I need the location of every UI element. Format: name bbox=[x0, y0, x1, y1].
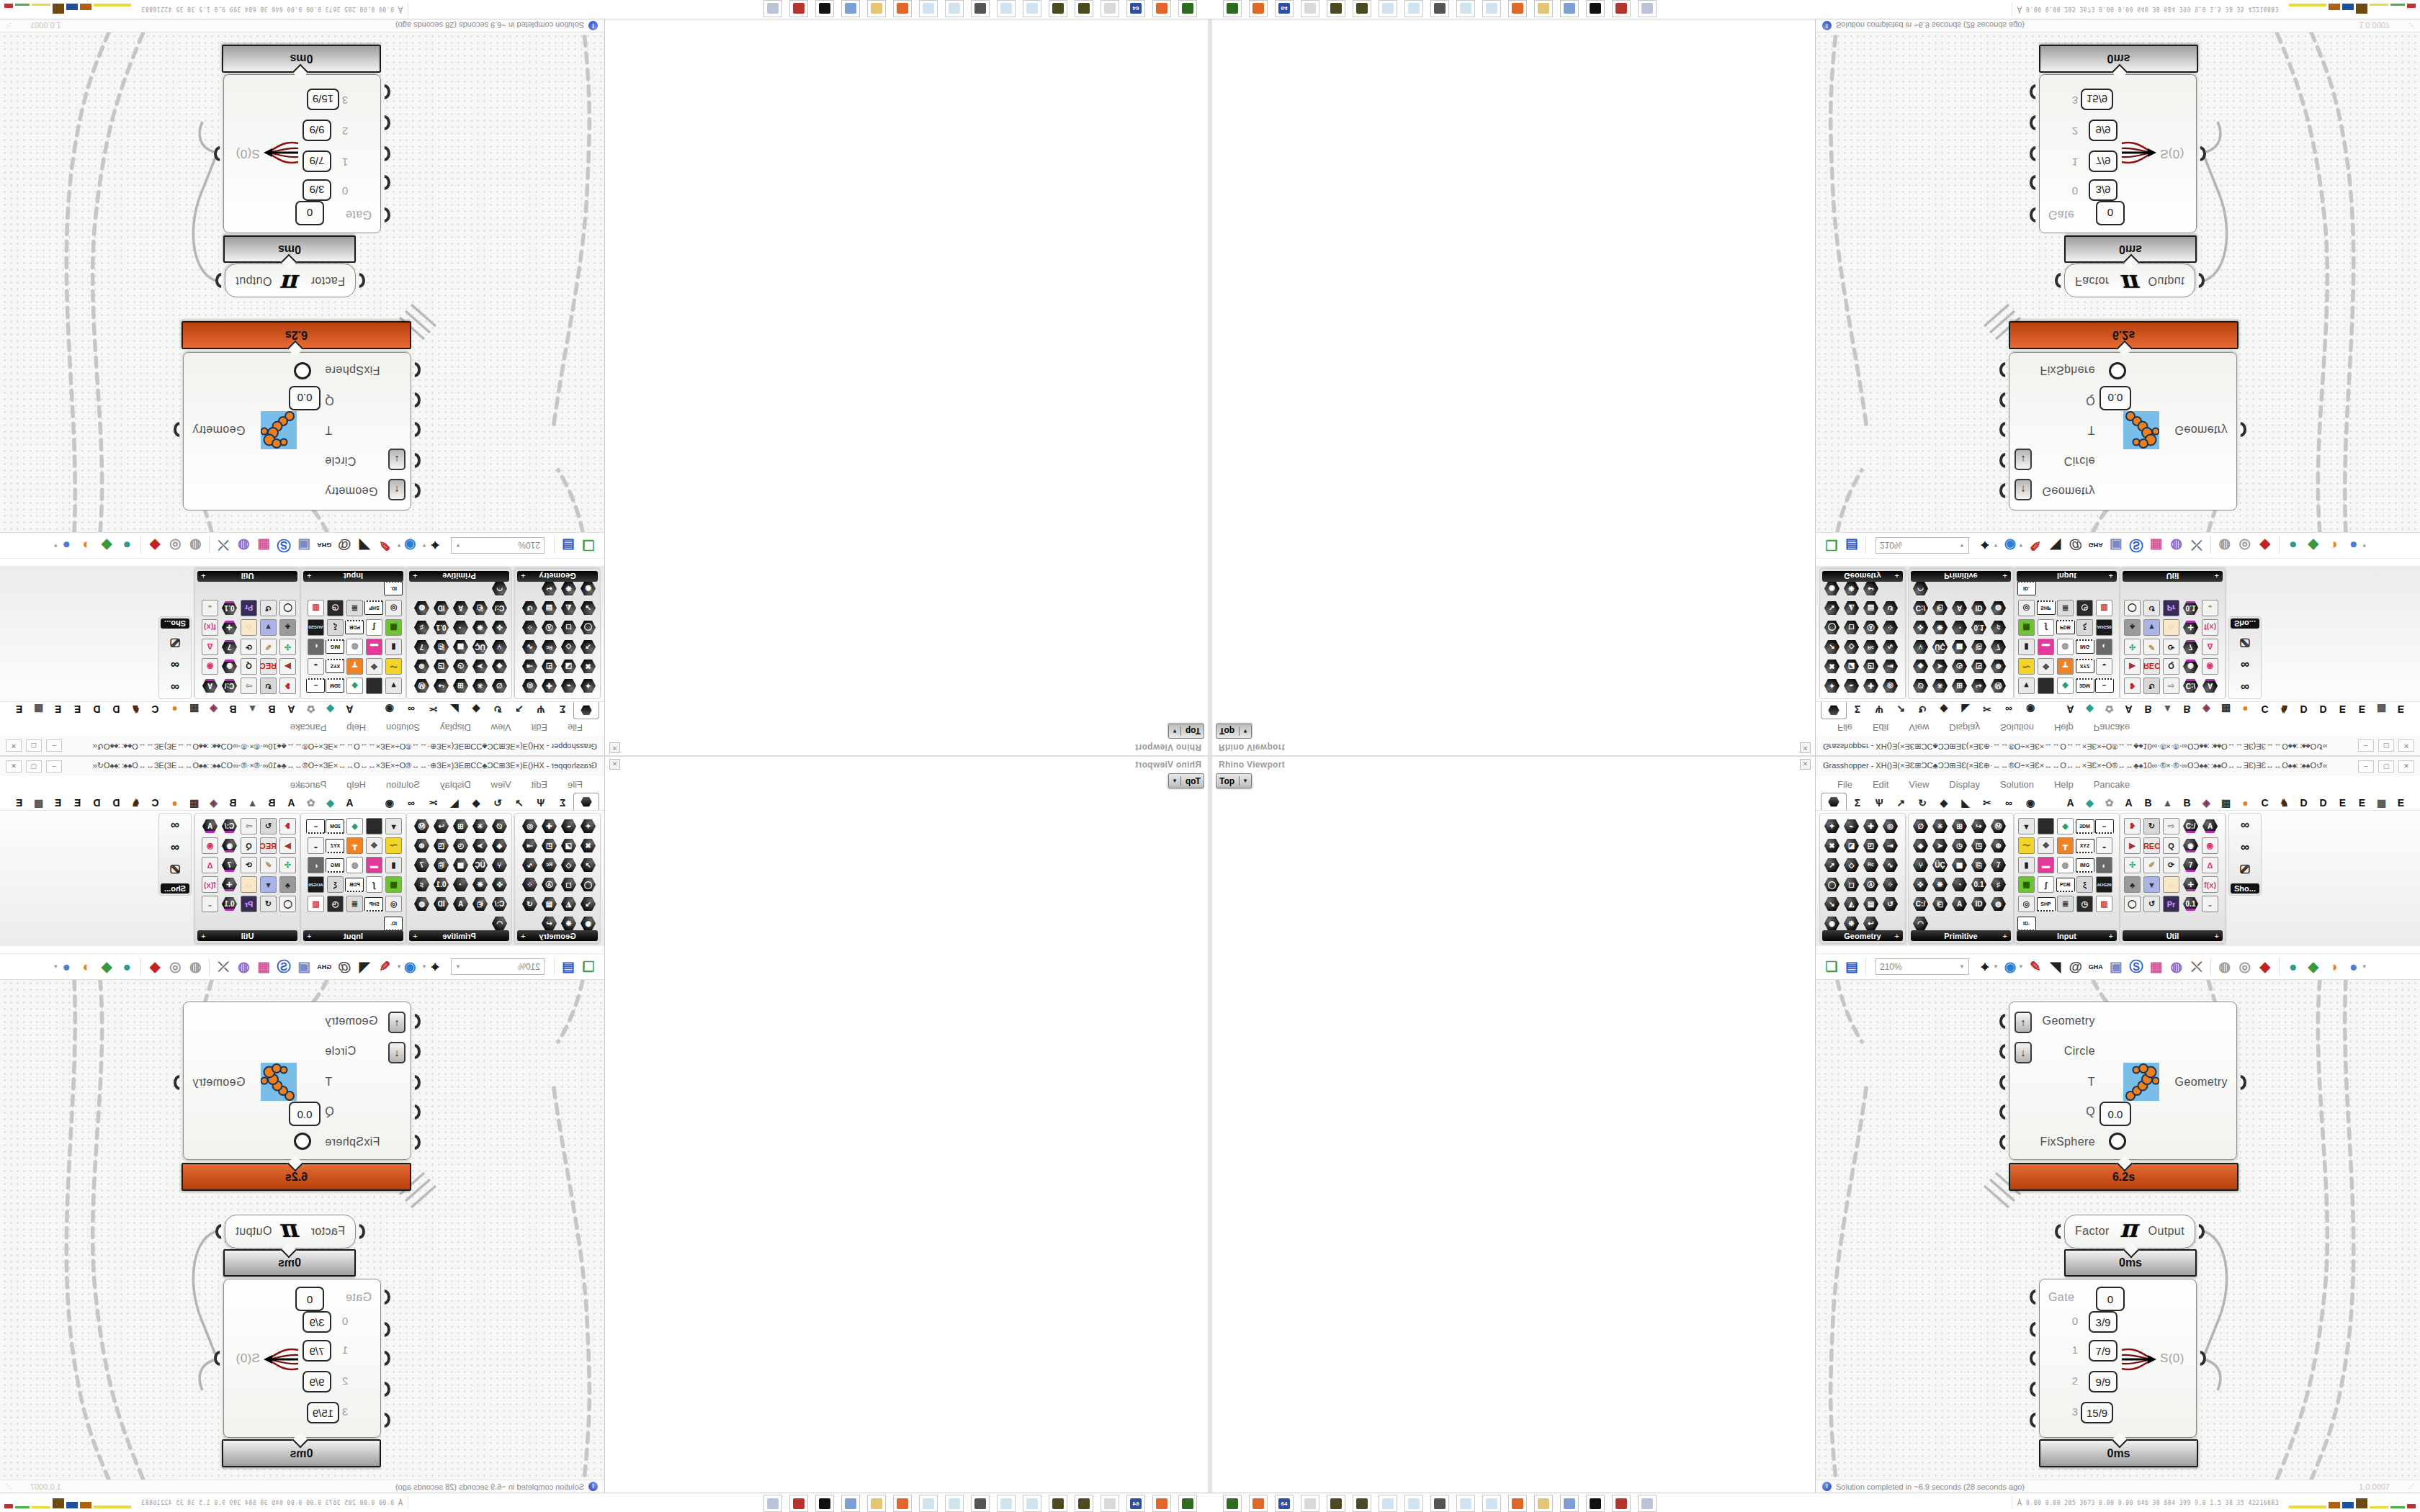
chevron-down-icon[interactable]: ▼ bbox=[53, 542, 58, 549]
component-icon[interactable]: ◭ bbox=[1844, 601, 1860, 616]
component-tab[interactable]: ↗ bbox=[1890, 797, 1912, 810]
component-icon[interactable]: REC bbox=[2143, 658, 2160, 675]
component-icon[interactable]: 〜 bbox=[2018, 658, 2035, 675]
plugin-tab[interactable]: B bbox=[2177, 703, 2197, 715]
component-icon[interactable]: ↺ bbox=[2143, 896, 2160, 912]
component-icon[interactable]: ID. bbox=[2017, 582, 2036, 596]
component-icon[interactable]: ◈ bbox=[2057, 678, 2074, 694]
component-icon[interactable]: ◷ bbox=[453, 660, 469, 674]
component-icon[interactable]: 7 bbox=[222, 640, 238, 654]
rhino-viewport[interactable] bbox=[1212, 19, 1817, 755]
component-icon[interactable]: ◉ bbox=[2202, 658, 2218, 675]
component-icon[interactable]: 0.1 bbox=[222, 897, 238, 912]
toolbar-icon[interactable]: ◥ bbox=[354, 957, 375, 977]
component-icon[interactable]: ξ bbox=[327, 619, 344, 636]
toolbar-icon[interactable]: ✎ bbox=[375, 536, 395, 556]
component-tab[interactable]: Ѱ bbox=[1868, 797, 1890, 810]
component-icon[interactable]: ▼ bbox=[2143, 876, 2160, 893]
component-icon[interactable]: 0.1 bbox=[434, 878, 449, 892]
toolbar-icon[interactable]: ⤬ bbox=[213, 536, 233, 556]
component-tab[interactable]: ✂ bbox=[1976, 797, 1998, 810]
taskbar-app-button[interactable] bbox=[1178, 1495, 1197, 1512]
component-icon[interactable]: ◈ bbox=[2057, 818, 2074, 834]
taskbar-app-button[interactable] bbox=[867, 0, 886, 17]
component-icon[interactable]: ⇥ bbox=[1883, 839, 1899, 853]
component-icon[interactable]: ❋ bbox=[561, 917, 577, 931]
arrow-down-button[interactable]: ↓ bbox=[388, 449, 405, 470]
plugin-tab[interactable]: ▦ bbox=[2216, 797, 2236, 809]
component-icon[interactable]: ↪ bbox=[434, 679, 449, 693]
menu-item-pancake[interactable]: Pancake bbox=[2094, 779, 2130, 790]
component-icon[interactable]: ✐ bbox=[2143, 857, 2160, 873]
palette-label[interactable]: Input+ bbox=[303, 571, 403, 582]
menu-item-display[interactable]: Display bbox=[1949, 722, 1980, 733]
toolbar-icon[interactable]: ◆ bbox=[145, 536, 165, 556]
component-icon[interactable]: ✐ bbox=[260, 639, 277, 655]
plugin-tab[interactable]: E bbox=[48, 703, 68, 715]
component-icon[interactable]: Ⓐ bbox=[542, 621, 557, 635]
title-bar[interactable]: Grasshopper - XH()Ǝ(×ƎƐ⊞ƆC♣ƆƆ⊞ƎƐ(×ƎƐ⊕·↔↔… bbox=[0, 757, 604, 776]
component-icon[interactable]: ◷ bbox=[1952, 660, 1968, 674]
input-socket[interactable] bbox=[353, 273, 365, 288]
toolbar-icon[interactable]: @ bbox=[334, 957, 354, 977]
component-tab[interactable]: ↻ bbox=[487, 702, 508, 715]
component-icon[interactable]: ↪ bbox=[1971, 679, 1987, 693]
plugin-tab[interactable]: C bbox=[2255, 797, 2275, 809]
component-icon[interactable]: ✥ bbox=[366, 658, 382, 675]
component-icon[interactable]: A bbox=[1952, 897, 1968, 912]
gate-row-value[interactable]: 7/9 bbox=[302, 150, 331, 172]
component-icon[interactable]: SHP bbox=[2037, 601, 2056, 616]
taskbar-app-button[interactable]: 64 bbox=[1126, 0, 1145, 17]
input-socket[interactable] bbox=[1999, 1104, 2012, 1120]
component-icon[interactable]: ➤ bbox=[1932, 660, 1948, 674]
toolbar-icon[interactable]: ◑ bbox=[2323, 536, 2344, 556]
taskbar-app-button[interactable] bbox=[1301, 1495, 1319, 1512]
component-icon[interactable]: ✜ bbox=[1913, 621, 1929, 635]
component-icon[interactable]: Pr bbox=[2163, 896, 2179, 912]
component-icon[interactable]: ⁘ bbox=[522, 878, 538, 892]
component-icon[interactable]: ↗ bbox=[581, 858, 596, 873]
component-icon[interactable]: Δ bbox=[202, 857, 218, 873]
component-icon[interactable]: ID. bbox=[2017, 917, 2036, 931]
tray-user-icon[interactable]: Å bbox=[398, 1499, 403, 1507]
toolbar-icon[interactable]: ▣ bbox=[2106, 536, 2126, 556]
toolbar-icon[interactable]: ⤬ bbox=[2187, 957, 2207, 977]
component-icon[interactable]: AUG20 bbox=[308, 876, 324, 893]
input-socket[interactable] bbox=[408, 483, 421, 498]
component-icon[interactable]: ◍ bbox=[346, 857, 363, 873]
stream-filter-component[interactable]: Gate 0 03/917/929/9315/9 S(0) bbox=[2039, 1279, 2197, 1438]
component-icon[interactable]: ◉ bbox=[222, 660, 238, 674]
component-icon[interactable]: 3DM bbox=[326, 679, 345, 693]
viewport-tab-top[interactable]: Top ▼ bbox=[1216, 724, 1252, 739]
component-tab[interactable]: ◆ bbox=[465, 797, 487, 810]
component-icon[interactable]: ⁘ bbox=[522, 621, 538, 635]
component-icon[interactable]: ⇨ bbox=[241, 818, 257, 834]
component-icon[interactable]: ❋ bbox=[1844, 917, 1860, 931]
component-icon[interactable]: ↩ bbox=[1863, 582, 1879, 596]
component-icon[interactable]: ✚ bbox=[1863, 819, 1879, 834]
component-icon[interactable]: ↻ bbox=[2143, 818, 2160, 834]
component-icon[interactable]: ⎘ bbox=[1971, 858, 1987, 873]
plugin-tab[interactable]: A bbox=[2061, 797, 2080, 809]
toolbar-icon[interactable]: ◎ bbox=[165, 957, 185, 977]
toolbar-icon[interactable]: ✎ bbox=[2025, 957, 2045, 977]
plugin-tab[interactable]: ◆ bbox=[321, 797, 340, 809]
toolbar-icon[interactable]: ❏ bbox=[1821, 957, 1842, 977]
component-icon[interactable]: ↗ bbox=[581, 640, 596, 654]
component-icon[interactable]: ➤ bbox=[1932, 839, 1948, 853]
component-icon[interactable]: ◰ bbox=[1863, 839, 1879, 853]
component-icon[interactable]: ♯ bbox=[1991, 878, 2007, 892]
component-icon[interactable]: ◎ bbox=[522, 819, 538, 834]
menu-item-help[interactable]: Help bbox=[2054, 722, 2074, 733]
component-icon[interactable]: PDB bbox=[346, 878, 364, 892]
component-icon[interactable]: A bbox=[202, 819, 218, 834]
toolbar-icon[interactable]: ⌖ bbox=[1975, 957, 1995, 977]
component-icon[interactable]: A bbox=[2202, 679, 2218, 693]
component-icon[interactable]: ♣ bbox=[2124, 876, 2141, 893]
sho-icon[interactable]: ∞ bbox=[2236, 816, 2254, 834]
plugin-tab[interactable]: D bbox=[2294, 703, 2313, 715]
component-icon[interactable]: ◠ bbox=[1913, 582, 1929, 596]
component-icon[interactable]: ❥ bbox=[2124, 678, 2141, 694]
taskbar-app-button[interactable] bbox=[971, 0, 990, 17]
component-icon[interactable]: ⎗ bbox=[472, 601, 488, 616]
plugin-tab[interactable]: ◆ bbox=[321, 703, 340, 715]
palette-label[interactable]: Primitive+ bbox=[409, 930, 509, 941]
component-icon[interactable]: 3DM bbox=[2076, 679, 2094, 693]
component-icon[interactable]: Q bbox=[2163, 658, 2179, 675]
plugin-tab[interactable]: C bbox=[2255, 703, 2275, 715]
taskbar-app-button[interactable]: 64 bbox=[1275, 1495, 1294, 1512]
component-icon[interactable]: ◒ bbox=[308, 658, 324, 675]
component-icon[interactable]: 〜 bbox=[385, 837, 402, 854]
menu-item-view[interactable]: View bbox=[491, 779, 511, 790]
component-icon[interactable]: ◉ bbox=[222, 839, 238, 853]
component-icon[interactable] bbox=[366, 818, 382, 834]
rhino-viewport[interactable] bbox=[603, 757, 1208, 1493]
taskbar-app-button[interactable] bbox=[1508, 0, 1527, 17]
title-bar[interactable]: Grasshopper - XH()Ǝ(×ƎƐ⊞ƆC♣ƆƆ⊞ƎƐ(×ƎƐ⊕·↔↔… bbox=[1816, 736, 2420, 755]
close-button[interactable]: ✕ bbox=[6, 760, 22, 773]
component-icon[interactable]: ◭ bbox=[1844, 897, 1860, 912]
component-icon[interactable]: ↪ bbox=[434, 819, 449, 834]
component-icon[interactable]: ❋ bbox=[561, 582, 577, 596]
component-icon[interactable]: ↗ bbox=[1824, 858, 1840, 873]
component-icon[interactable]: Δ bbox=[2202, 857, 2218, 873]
chevron-down-icon[interactable]: ▼ bbox=[396, 542, 402, 549]
component-icon[interactable]: XYZ bbox=[2076, 660, 2094, 674]
input-socket[interactable] bbox=[378, 1290, 390, 1305]
component-icon[interactable]: ✳ bbox=[472, 819, 488, 834]
chevron-down-icon[interactable]: ▼ bbox=[1993, 963, 1999, 970]
chevron-down-icon[interactable]: ▼ bbox=[1993, 542, 1999, 549]
toolbar-icon[interactable]: ◍ bbox=[2166, 536, 2187, 556]
palette-label[interactable]: Geometry+ bbox=[517, 571, 598, 582]
taskbar-app-button[interactable] bbox=[1534, 0, 1553, 17]
close-icon[interactable]: ✕ bbox=[609, 759, 620, 770]
component-icon[interactable]: ÜÇ bbox=[1932, 640, 1948, 654]
palette-label[interactable]: Sho... bbox=[161, 883, 189, 894]
toolbar-icon[interactable]: ⤬ bbox=[2187, 536, 2207, 556]
plugin-tab[interactable]: D bbox=[107, 703, 126, 715]
component-icon[interactable]: ◰ bbox=[1863, 660, 1879, 674]
taskbar-app-button[interactable]: 64 bbox=[1275, 0, 1294, 17]
input-socket[interactable] bbox=[408, 453, 421, 468]
input-socket[interactable] bbox=[408, 1044, 421, 1059]
component-icon[interactable]: ▦ bbox=[385, 619, 402, 636]
viewport-tab-top[interactable]: Top ▼ bbox=[1168, 724, 1204, 739]
component-tab[interactable]: ◆ bbox=[465, 702, 487, 715]
component-icon[interactable]: ↻ bbox=[260, 818, 277, 834]
component-icon[interactable]: ❋ bbox=[472, 621, 488, 635]
toolbar-icon[interactable]: @ bbox=[2066, 957, 2086, 977]
component-icon[interactable]: ⌁ bbox=[1844, 819, 1860, 834]
component-icon[interactable]: ◐ bbox=[2096, 857, 2112, 873]
plugin-tab[interactable]: E bbox=[2333, 703, 2352, 715]
plugin-tab[interactable]: D bbox=[87, 703, 107, 715]
plugin-tab[interactable]: E bbox=[68, 797, 87, 809]
component-icon[interactable]: ξ bbox=[2076, 876, 2093, 893]
viewport-tab-top[interactable]: Top ▼ bbox=[1168, 773, 1204, 788]
sho-icon[interactable]: ∞ bbox=[166, 656, 184, 673]
fixsphere-component[interactable]: ↑ ↓ Geometry Circle T Q FixSphere bbox=[183, 1002, 411, 1160]
toolbar-icon[interactable]: ❏ bbox=[578, 957, 599, 977]
gate-row-value[interactable]: 15/9 bbox=[2081, 89, 2113, 110]
component-icon[interactable]: ✳ bbox=[1932, 679, 1948, 693]
taskbar-app-button[interactable] bbox=[1612, 1495, 1631, 1512]
tab-params-selected[interactable] bbox=[573, 793, 599, 810]
component-icon[interactable]: ▮ bbox=[2018, 857, 2035, 873]
zoom-level-combobox[interactable]: 210% ▼ bbox=[451, 958, 544, 975]
chevron-down-icon[interactable]: ▼ bbox=[53, 963, 58, 970]
toolbar-icon[interactable]: ◍ bbox=[233, 957, 254, 977]
component-icon[interactable]: ◇ bbox=[561, 640, 577, 654]
toolbar-icon[interactable]: ◆ bbox=[145, 957, 165, 977]
component-icon[interactable]: 0.1 bbox=[222, 601, 238, 616]
gate-row-value[interactable]: 9/9 bbox=[302, 1371, 331, 1392]
component-icon[interactable]: ◉ bbox=[2183, 839, 2199, 853]
component-icon[interactable]: ✛ bbox=[2183, 621, 2199, 635]
component-icon[interactable]: ◪ bbox=[1844, 660, 1860, 674]
component-icon[interactable]: ❥ bbox=[279, 818, 296, 834]
tray-user-icon[interactable]: Å bbox=[2017, 1499, 2022, 1507]
component-icon[interactable]: ◉ bbox=[2183, 660, 2199, 674]
chevron-down-icon[interactable]: ▼ bbox=[2018, 542, 2024, 549]
sho-icon[interactable]: ⎚ bbox=[2236, 634, 2254, 651]
component-icon[interactable]: ⎘ bbox=[434, 640, 449, 654]
component-tab[interactable]: ∞ bbox=[400, 797, 422, 810]
toolbar-icon[interactable]: ✎ bbox=[375, 957, 395, 977]
chevron-down-icon[interactable]: ▼ bbox=[2018, 963, 2024, 970]
component-icon[interactable]: ◳ bbox=[434, 839, 449, 853]
component-tab[interactable]: ◣ bbox=[1955, 797, 1976, 810]
close-icon[interactable]: ✕ bbox=[1800, 742, 1811, 753]
component-icon[interactable]: ◒ bbox=[308, 837, 324, 854]
chevron-down-icon[interactable]: ▼ bbox=[421, 542, 427, 549]
gate-row-value[interactable]: 3/9 bbox=[302, 179, 331, 201]
plugin-tab[interactable]: B bbox=[2138, 797, 2158, 809]
component-icon[interactable]: ↩ bbox=[542, 582, 557, 596]
component-icon[interactable]: C:/ bbox=[492, 897, 508, 912]
input-socket[interactable] bbox=[2055, 1224, 2067, 1239]
plugin-tab[interactable]: ✿ bbox=[301, 797, 321, 809]
component-icon[interactable]: ◍ bbox=[2057, 857, 2074, 873]
component-icon[interactable] bbox=[2038, 818, 2054, 834]
menu-item-display[interactable]: Display bbox=[440, 722, 471, 733]
arrow-down-button[interactable]: ↓ bbox=[2015, 1042, 2032, 1063]
component-icon[interactable]: ⟳ bbox=[241, 857, 257, 873]
component-icon[interactable]: 0.1 bbox=[2183, 897, 2199, 912]
component-icon[interactable]: ◯ bbox=[279, 896, 296, 912]
plugin-tab[interactable]: ◈ bbox=[2197, 797, 2216, 809]
component-icon[interactable]: ∫ bbox=[366, 619, 382, 636]
input-socket[interactable] bbox=[378, 207, 390, 222]
component-tab[interactable]: ↻ bbox=[487, 797, 508, 810]
menu-item-view[interactable]: View bbox=[1909, 779, 1929, 790]
taskbar-app-button[interactable] bbox=[1586, 1495, 1605, 1512]
toolbar-icon[interactable]: @ bbox=[334, 536, 354, 556]
component-tab[interactable]: ◉ bbox=[2020, 797, 2041, 810]
taskbar-app-button[interactable] bbox=[1430, 1495, 1449, 1512]
component-tab[interactable]: ◉ bbox=[379, 702, 400, 715]
component-tab[interactable]: Σ bbox=[552, 797, 573, 810]
component-icon[interactable]: ◯ bbox=[581, 878, 596, 892]
component-icon[interactable]: ↘ bbox=[1824, 897, 1840, 912]
component-icon[interactable]: ◳ bbox=[1971, 660, 1987, 674]
input-socket[interactable] bbox=[408, 392, 421, 408]
toolbar-icon[interactable]: ◆ bbox=[2303, 536, 2323, 556]
menu-item-edit[interactable]: Edit bbox=[532, 722, 547, 733]
toolbar-icon[interactable]: ◑ bbox=[76, 536, 97, 556]
component-icon[interactable]: XYZ bbox=[2076, 839, 2094, 853]
component-icon[interactable]: ◉ bbox=[1824, 582, 1840, 596]
toolbar-icon[interactable]: ◉ bbox=[400, 536, 420, 556]
component-icon[interactable]: ↺ bbox=[1883, 897, 1899, 912]
menu-item-help[interactable]: Help bbox=[346, 722, 366, 733]
component-icon[interactable]: ▼ bbox=[2018, 818, 2035, 834]
component-icon[interactable]: IMG bbox=[2076, 640, 2094, 654]
component-icon[interactable]: ▥ bbox=[308, 600, 324, 616]
component-icon[interactable]: ↺ bbox=[522, 601, 538, 616]
component-icon[interactable]: ✛ bbox=[222, 621, 238, 635]
component-icon[interactable]: ✦ bbox=[1824, 679, 1840, 693]
component-icon[interactable]: ⎘ bbox=[1971, 640, 1987, 654]
component-tab[interactable]: ◉ bbox=[379, 797, 400, 810]
toolbar-icon[interactable]: GHA bbox=[2086, 536, 2106, 556]
component-icon[interactable]: ▦ bbox=[2018, 619, 2035, 636]
plugin-tab[interactable]: B bbox=[262, 797, 282, 809]
tray-monitor-chart[interactable] bbox=[4, 4, 131, 15]
taskbar-app-button[interactable]: 64 bbox=[1126, 1495, 1145, 1512]
tab-params-selected[interactable] bbox=[573, 702, 599, 719]
input-socket[interactable] bbox=[2030, 207, 2042, 222]
palette-label[interactable]: Geometry+ bbox=[1822, 930, 1903, 941]
sho-icon[interactable]: ∞ bbox=[2236, 656, 2254, 673]
component-icon[interactable]: ∞ bbox=[2095, 679, 2114, 693]
component-icon[interactable]: REC bbox=[260, 837, 277, 854]
q-value-box[interactable]: 0.0 bbox=[2099, 386, 2131, 410]
plugin-tab[interactable]: ◆ bbox=[2080, 703, 2099, 715]
component-icon[interactable]: Pr bbox=[2163, 600, 2179, 616]
component-icon[interactable]: C:/ bbox=[2183, 679, 2199, 693]
toolbar-icon[interactable]: ⌖ bbox=[425, 536, 445, 556]
toolbar-icon[interactable]: ⌖ bbox=[425, 957, 445, 977]
component-icon[interactable]: ◐ bbox=[308, 639, 324, 655]
q-value-box[interactable]: 0.0 bbox=[2099, 1102, 2131, 1126]
component-tab[interactable]: ∞ bbox=[400, 702, 422, 715]
component-icon[interactable]: ◯ bbox=[1824, 878, 1840, 892]
input-socket[interactable] bbox=[408, 1135, 421, 1150]
component-icon[interactable]: ↻ bbox=[2143, 678, 2160, 694]
toolbar-icon[interactable]: ◆ bbox=[2255, 536, 2275, 556]
input-socket[interactable] bbox=[2055, 273, 2067, 288]
input-socket[interactable] bbox=[1999, 1044, 2012, 1059]
component-icon[interactable]: ◷ bbox=[2076, 896, 2093, 912]
component-icon[interactable]: ◭ bbox=[561, 897, 577, 912]
component-icon[interactable]: ◠ bbox=[492, 917, 508, 931]
component-icon[interactable]: ✥ bbox=[2038, 658, 2054, 675]
component-icon[interactable]: ▶ bbox=[279, 837, 296, 854]
component-icon[interactable]: ⌁ bbox=[1844, 679, 1860, 693]
component-tab[interactable]: Ѱ bbox=[530, 797, 552, 810]
component-icon[interactable]: ⎘ bbox=[434, 858, 449, 873]
toolbar-icon[interactable]: ◎ bbox=[2235, 957, 2255, 977]
menu-item-edit[interactable]: Edit bbox=[1873, 722, 1888, 733]
minimize-button[interactable]: – bbox=[46, 760, 62, 773]
plugin-tab[interactable]: ♞ bbox=[2275, 703, 2294, 715]
gate-row-value[interactable]: 3/9 bbox=[2089, 1311, 2117, 1333]
arrow-up-button[interactable]: ↑ bbox=[2015, 479, 2032, 500]
toolbar-icon[interactable]: ◍ bbox=[2166, 957, 2187, 977]
toolbar-icon[interactable]: ● bbox=[2344, 957, 2364, 977]
component-icon[interactable]: ↩ bbox=[1863, 917, 1879, 931]
close-button[interactable]: ✕ bbox=[6, 739, 22, 752]
component-icon[interactable]: ◎ bbox=[385, 896, 402, 912]
component-icon[interactable]: ↺ bbox=[1883, 601, 1899, 616]
zoom-level-combobox[interactable]: 210% ▼ bbox=[1875, 958, 1969, 975]
input-socket[interactable] bbox=[408, 1075, 421, 1090]
component-icon[interactable]: ∫ bbox=[2038, 876, 2054, 893]
menu-item-pancake[interactable]: Pancake bbox=[2094, 722, 2130, 733]
plugin-tab[interactable]: ♞ bbox=[126, 703, 145, 715]
taskbar-app-button[interactable] bbox=[1249, 1495, 1268, 1512]
input-socket[interactable] bbox=[1999, 362, 2012, 377]
component-icon[interactable]: ÜÇ bbox=[472, 858, 488, 873]
component-icon[interactable]: C:/ bbox=[222, 679, 238, 693]
taskbar-app-button[interactable] bbox=[997, 0, 1016, 17]
component-tab[interactable]: ↻ bbox=[1912, 702, 1933, 715]
component-icon[interactable]: ↘ bbox=[1824, 601, 1840, 616]
component-icon[interactable]: ◈ bbox=[1913, 839, 1929, 853]
component-icon[interactable]: ◰ bbox=[542, 660, 557, 674]
plugin-tab[interactable]: E bbox=[2391, 797, 2411, 809]
component-icon[interactable]: 7 bbox=[1991, 640, 2007, 654]
component-icon[interactable]: ⌁ bbox=[561, 679, 577, 693]
fixsphere-toggle[interactable] bbox=[294, 1133, 311, 1150]
menu-item-help[interactable]: Help bbox=[346, 779, 366, 790]
component-icon[interactable]: ÜÇ bbox=[472, 640, 488, 654]
toolbar-icon[interactable]: ◥ bbox=[2045, 957, 2066, 977]
plugin-tab[interactable]: ◈ bbox=[2197, 703, 2216, 715]
component-icon[interactable]: ◠ bbox=[1913, 917, 1929, 931]
component-icon[interactable]: ᴿᶜ bbox=[542, 858, 557, 873]
component-icon[interactable]: ▮ bbox=[385, 639, 402, 655]
input-socket[interactable] bbox=[1999, 1135, 2012, 1150]
component-icon[interactable]: ◭ bbox=[561, 601, 577, 616]
